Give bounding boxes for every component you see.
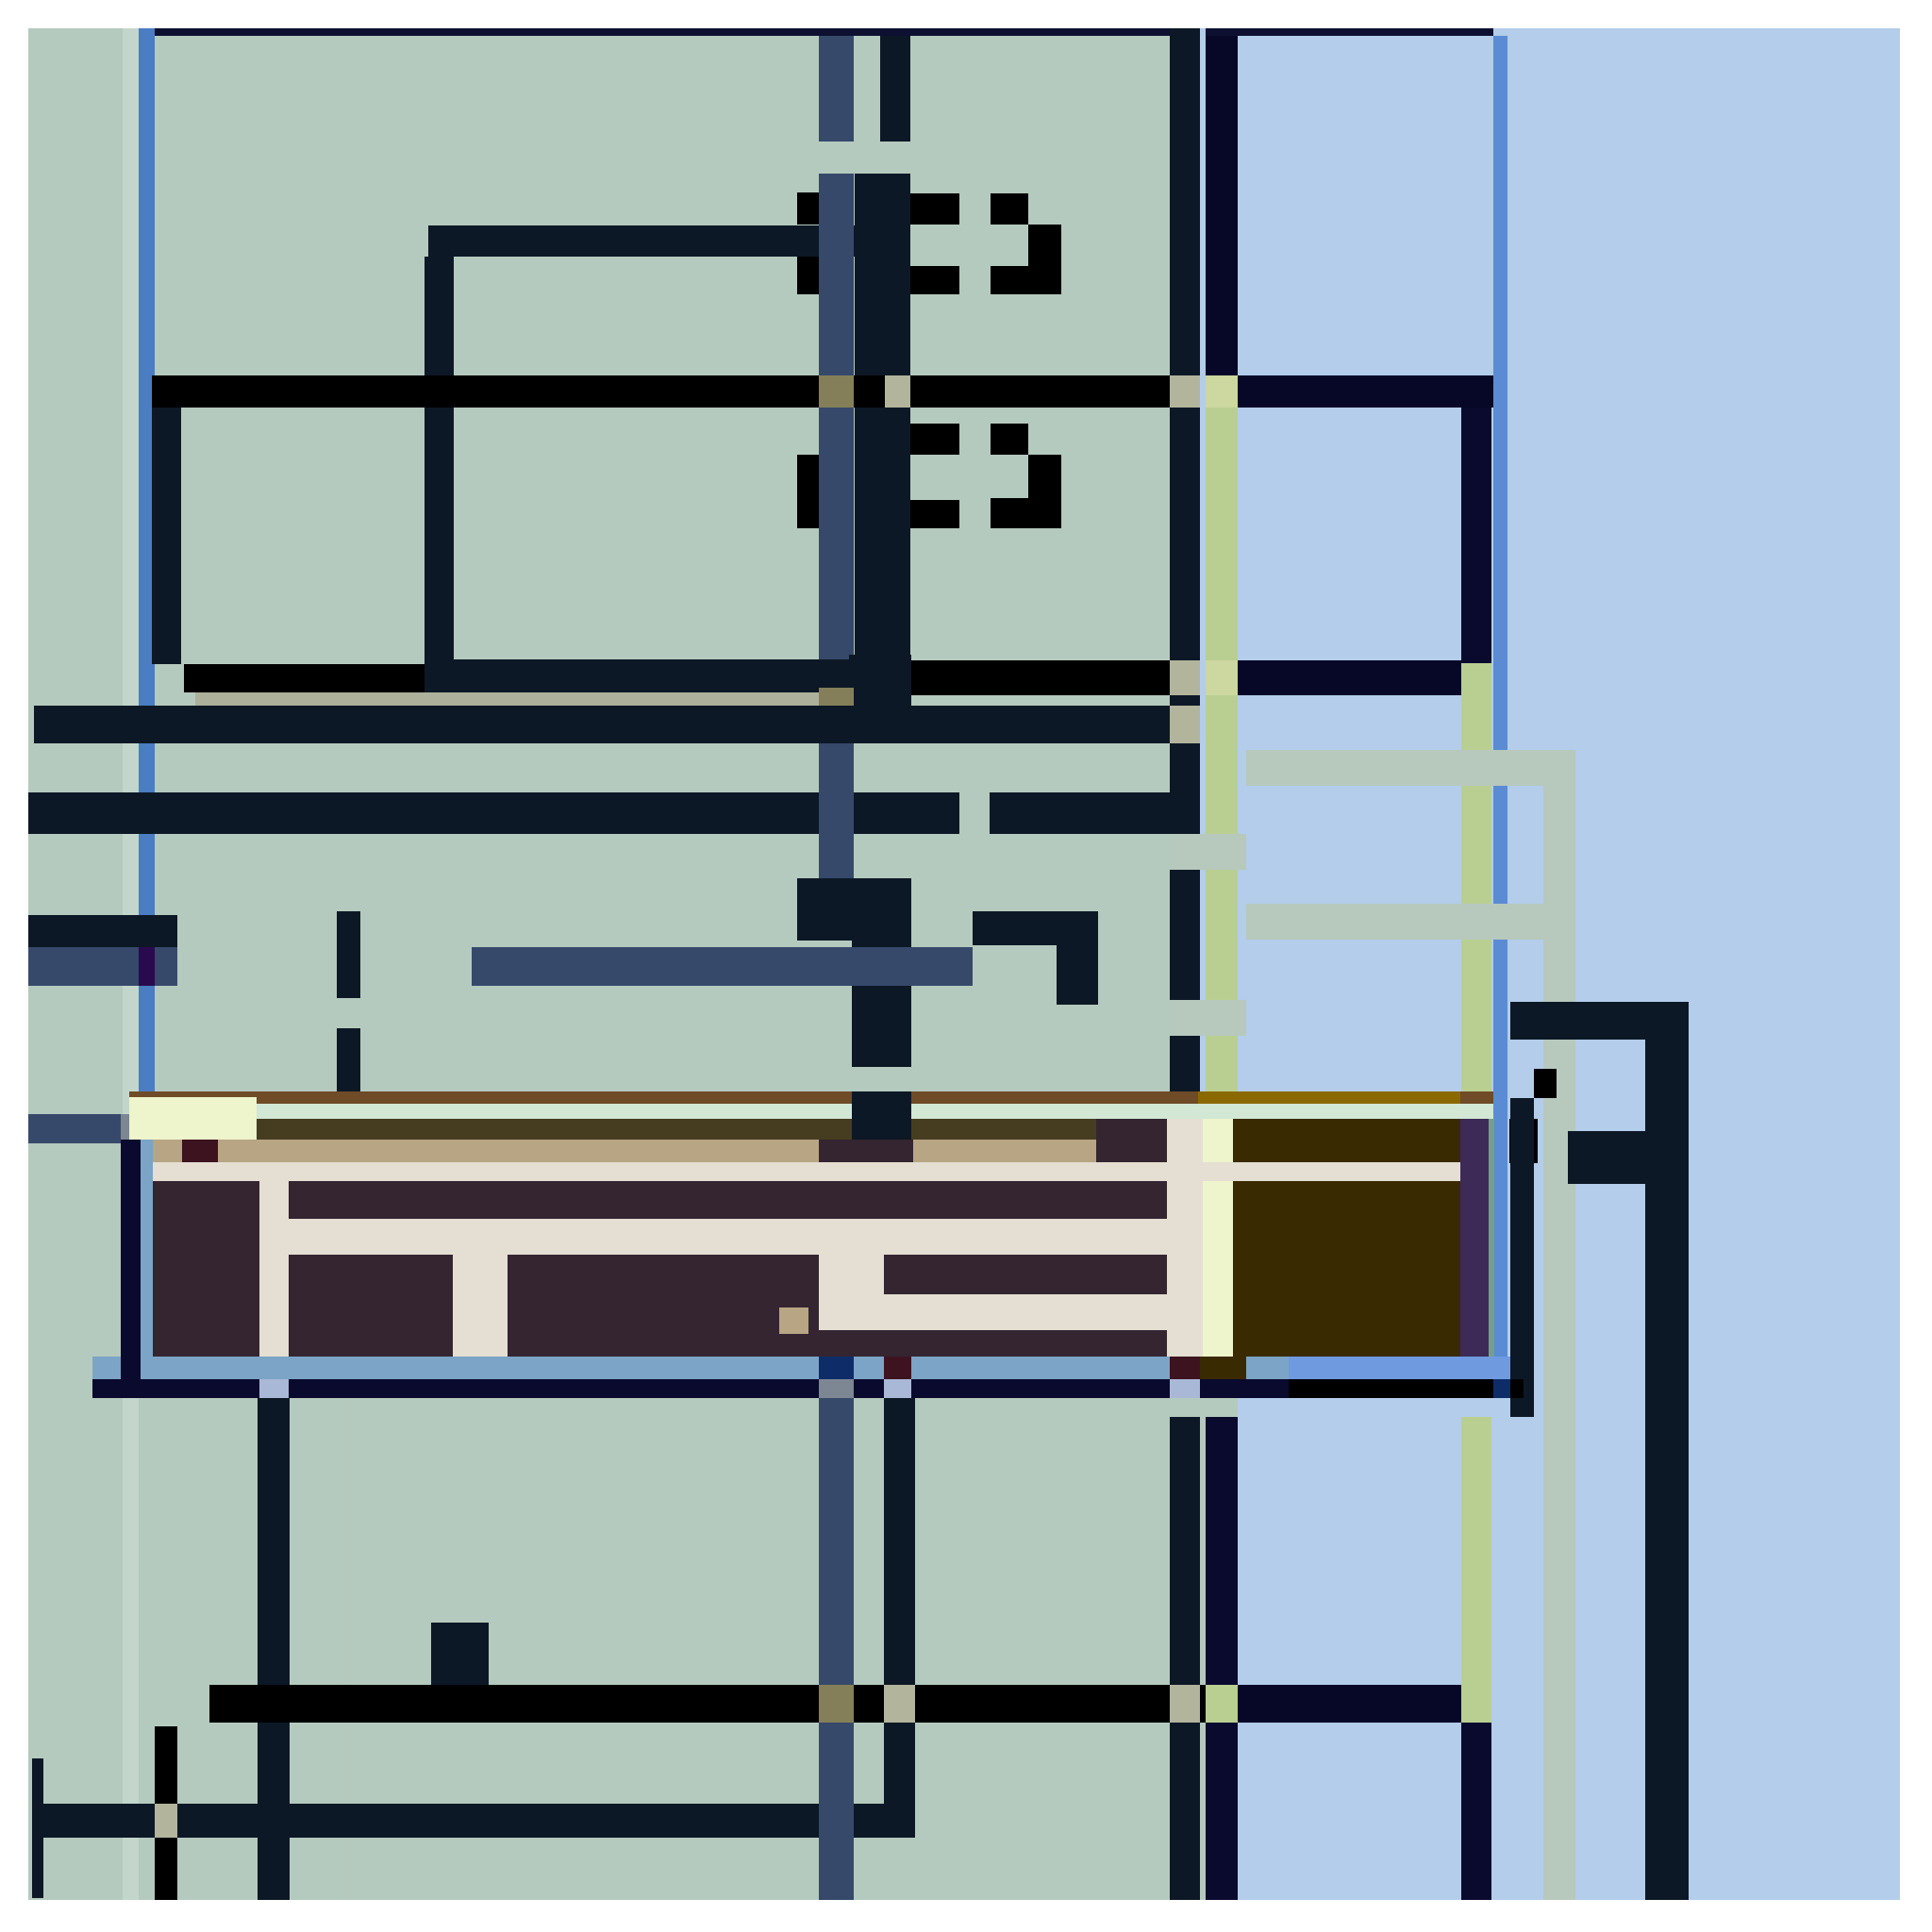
slate-bar-5a bbox=[28, 947, 177, 986]
sand-line bbox=[195, 692, 849, 706]
col-black-right bbox=[1510, 1098, 1534, 1417]
corner-v bbox=[1057, 945, 1098, 1005]
maroon-field bbox=[153, 1181, 1170, 1357]
stub-col-a bbox=[337, 911, 360, 998]
band1-left bbox=[1170, 834, 1246, 870]
bar-l1-navy bbox=[1238, 375, 1493, 408]
glitch-mosaic-canvas: Abstract glitched screen mosaic of flat … bbox=[0, 0, 1932, 1932]
maroon-sq-2 bbox=[819, 1140, 913, 1162]
col-green-bottom bbox=[1461, 1417, 1491, 1723]
bar-a-green-sq bbox=[1206, 1685, 1238, 1723]
col-a-bottom bbox=[1170, 1417, 1200, 1900]
maroon-sq-3 bbox=[884, 1357, 911, 1379]
navy-col-main bbox=[855, 174, 910, 664]
bar4 bbox=[28, 915, 177, 947]
peri-sq-1 bbox=[259, 1379, 289, 1398]
stripe-blue-right bbox=[1493, 36, 1507, 1379]
glyph1-f bbox=[991, 266, 1061, 294]
cream-band-a bbox=[289, 1219, 1170, 1255]
cream-band-c bbox=[819, 1294, 1170, 1330]
bar-b-sand-sq bbox=[155, 1804, 177, 1838]
glyph2-hook bbox=[1028, 455, 1061, 498]
col-b-navy-top bbox=[1206, 36, 1238, 375]
bar-l1-green-sq bbox=[1206, 375, 1238, 408]
r1-top-bar bbox=[428, 225, 855, 257]
peri-sq-3 bbox=[1170, 1379, 1200, 1398]
col-dark-a bbox=[1170, 28, 1200, 1128]
col-navyblack-bot bbox=[1461, 1723, 1491, 1900]
bar3-slate-sq bbox=[819, 792, 854, 834]
slate-bar-6 bbox=[28, 1114, 121, 1143]
col-r-navy-seg bbox=[1461, 408, 1491, 663]
cream-col-left bbox=[259, 1162, 289, 1357]
brown-block-top bbox=[1233, 1119, 1460, 1162]
bar1-black-left bbox=[184, 664, 425, 692]
bar1-green-sq bbox=[1206, 660, 1238, 695]
black-sq-bottom bbox=[431, 1623, 489, 1685]
block-right bbox=[1568, 1131, 1645, 1184]
bar-a-pale-sq bbox=[884, 1685, 915, 1723]
sq-checker-2 bbox=[1534, 1069, 1557, 1098]
band2-left bbox=[1170, 1000, 1246, 1036]
slate-bar-5b bbox=[472, 947, 973, 986]
bar2-sand-sq bbox=[1170, 706, 1200, 743]
black-row bbox=[1289, 1379, 1524, 1398]
brown-sq bbox=[1200, 1357, 1246, 1379]
bar-l1-sand-sq bbox=[1170, 375, 1200, 408]
paleyellow-col-r bbox=[1203, 1119, 1233, 1373]
r2-left-bar bbox=[152, 403, 181, 664]
bar1-navy bbox=[1238, 660, 1461, 695]
border-navy-col bbox=[121, 1140, 141, 1398]
stub-col-b bbox=[337, 1028, 360, 1098]
banner-paleyellow bbox=[129, 1097, 257, 1140]
line-top-navy bbox=[155, 28, 1493, 36]
bar-a-olive-sq bbox=[819, 1685, 854, 1723]
navy-sq-a bbox=[819, 1357, 854, 1379]
center-notch bbox=[797, 878, 852, 941]
bar-l1-black bbox=[152, 375, 1170, 408]
cream-vert-1 bbox=[453, 1255, 508, 1357]
glyph1-e bbox=[910, 266, 959, 294]
blue-row bbox=[1289, 1357, 1510, 1379]
navy-col-bottom bbox=[884, 1398, 915, 1838]
tan-sq bbox=[779, 1307, 808, 1334]
bar-a-navy bbox=[1238, 1685, 1461, 1723]
corner-h bbox=[973, 911, 1098, 945]
bar1-sand-sq bbox=[1170, 660, 1200, 695]
col-b-bottom bbox=[1206, 1417, 1238, 1900]
navy-col-top bbox=[880, 36, 910, 142]
slate-col-top bbox=[819, 36, 854, 142]
navy-sq-b bbox=[1493, 1379, 1510, 1398]
bar-l1-olive-sq bbox=[819, 375, 854, 408]
banner-cream-row bbox=[129, 1162, 1461, 1181]
glyph2-b bbox=[910, 424, 959, 455]
border-steel-col bbox=[141, 1140, 153, 1357]
bar-cap-right bbox=[1510, 1002, 1689, 1040]
brown-block bbox=[1233, 1181, 1460, 1373]
maroon-sq-4 bbox=[1170, 1357, 1200, 1379]
glyph2-d bbox=[910, 500, 959, 528]
glyph1-c bbox=[991, 193, 1028, 225]
bar1-black-mid bbox=[910, 660, 1170, 695]
teal-sliver bbox=[1489, 1119, 1494, 1379]
band1-right bbox=[1246, 750, 1575, 786]
center-col-low bbox=[852, 1091, 911, 1140]
glyph2-a bbox=[797, 455, 819, 528]
maroon-sq-1 bbox=[182, 1140, 218, 1162]
r1-left-bar bbox=[425, 257, 454, 660]
bar1-ink bbox=[425, 659, 885, 695]
bar3-right bbox=[990, 792, 1170, 834]
col-r-green bbox=[1461, 663, 1491, 1092]
banner-mint-row bbox=[129, 1104, 1493, 1119]
banner-tan-row bbox=[129, 1140, 1110, 1162]
peri-sq-2 bbox=[884, 1379, 911, 1398]
slate-col-main bbox=[819, 174, 854, 899]
steel-row bbox=[92, 1357, 1289, 1379]
glyph1-a bbox=[797, 192, 819, 225]
glyph1-d bbox=[797, 257, 819, 294]
purple-sq bbox=[139, 947, 155, 986]
bar2 bbox=[34, 706, 1170, 743]
glyph2-e bbox=[991, 498, 1061, 528]
bar-b-slate-sq bbox=[819, 1804, 854, 1838]
cream-vert-2 bbox=[819, 1255, 884, 1294]
col-navy-right bbox=[1645, 1040, 1689, 1900]
gray-sq-2 bbox=[819, 1379, 854, 1398]
band2-right bbox=[1246, 904, 1575, 940]
banner-gold-row bbox=[1198, 1091, 1460, 1104]
bar-a-black bbox=[209, 1685, 1238, 1723]
cream-col-right bbox=[1167, 1119, 1203, 1373]
bar-l1-pale-sq bbox=[885, 375, 910, 408]
bar-a-sand-sq bbox=[1170, 1685, 1200, 1723]
glyph2-c bbox=[991, 424, 1028, 455]
glyph1-b bbox=[910, 193, 959, 225]
